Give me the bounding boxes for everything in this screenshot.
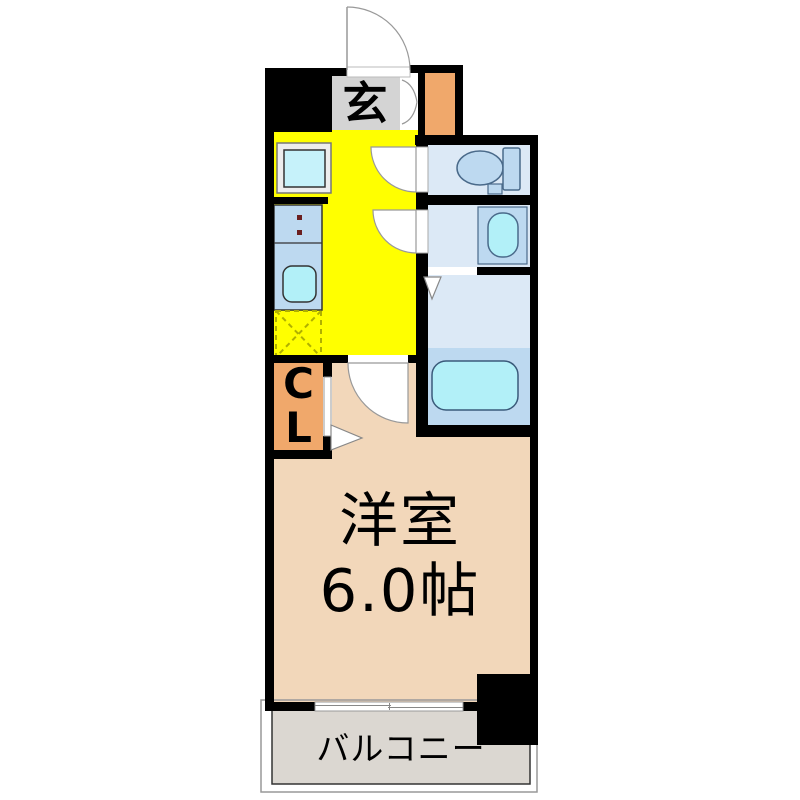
- bathtub: [432, 361, 518, 410]
- wall-toilet-top: [415, 135, 538, 145]
- wall-room-bottom-left: [265, 702, 317, 711]
- wall-right-outer: [530, 137, 538, 745]
- western-room-label: 洋室 6.0帖: [268, 486, 532, 626]
- western-room-name: 洋室: [268, 486, 532, 556]
- closet-label-c: C: [283, 362, 314, 406]
- entrance-door-arc: [347, 7, 410, 70]
- wall-block-top-left: [265, 68, 332, 132]
- floor-plan-drawing: [0, 0, 800, 800]
- stove-burner-1: [297, 215, 302, 220]
- kitchen-sink: [283, 266, 316, 302]
- wash-basin: [488, 213, 518, 257]
- closet-label: C L: [274, 361, 323, 451]
- wall-service-right: [455, 65, 463, 141]
- wall-top: [332, 68, 347, 76]
- western-room-size: 6.0帖: [268, 556, 532, 626]
- wall-closet-right-top: [323, 363, 332, 377]
- toilet-tank: [503, 148, 520, 190]
- bathroom-floor: [423, 275, 530, 348]
- entrance-label: 玄: [330, 76, 400, 130]
- toilet-step: [488, 184, 502, 194]
- stove-burner-2: [297, 230, 302, 235]
- room-door-opening: [348, 355, 408, 363]
- western-room-floor-right: [416, 437, 530, 459]
- toilet-bowl: [457, 151, 503, 185]
- washroom-door-leaf: [416, 210, 428, 253]
- bathroom-opening: [428, 267, 477, 275]
- balcony-label: バルコニー: [272, 730, 530, 768]
- wall-bathroom-bottom: [416, 425, 538, 437]
- room-window: [315, 702, 463, 711]
- floor-plan: 玄 C L 洋室 6.0帖 バルコニー: [0, 0, 800, 800]
- toilet-door-leaf: [416, 147, 428, 192]
- refrigerator-top: [284, 150, 325, 187]
- closet-label-l: L: [285, 406, 312, 450]
- wall-toilet-washroom: [416, 195, 530, 205]
- service-block: [425, 73, 455, 135]
- closet-opening: [324, 377, 331, 436]
- wall-service-left: [418, 73, 425, 137]
- wall-kitchen-divider: [265, 197, 328, 204]
